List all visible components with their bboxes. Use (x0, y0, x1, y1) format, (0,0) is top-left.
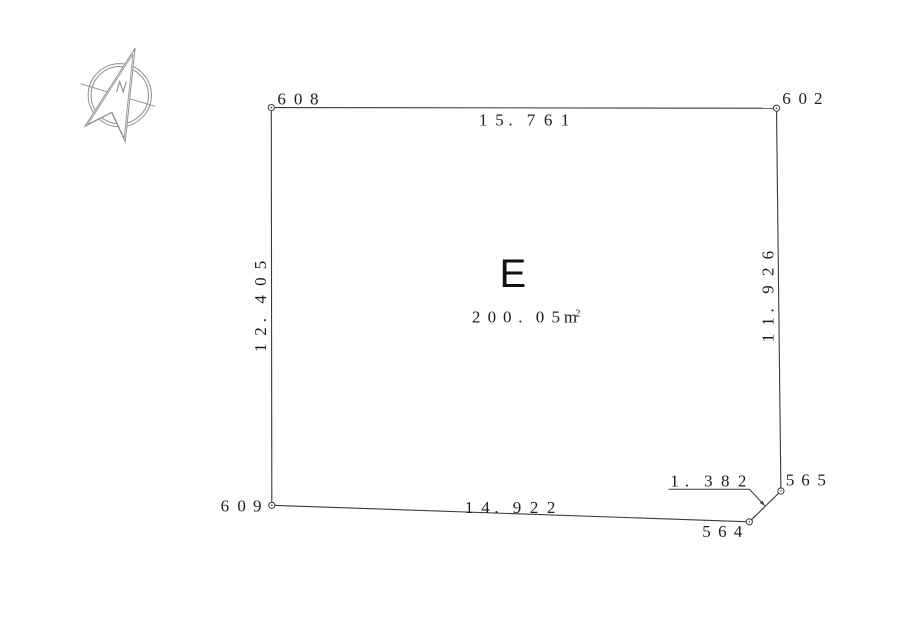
svg-text:200.05m2: 200.05m2 (472, 308, 581, 327)
svg-text:608: 608 (277, 90, 318, 109)
svg-text:1.382: 1.382 (670, 471, 746, 490)
svg-text:E: E (500, 252, 527, 296)
svg-text:602: 602 (782, 89, 822, 108)
svg-text:565: 565 (786, 471, 826, 490)
svg-text:15.761: 15.761 (479, 110, 570, 129)
svg-text:609: 609 (221, 496, 262, 515)
svg-text:12.405: 12.405 (251, 261, 270, 352)
svg-text:11.926: 11.926 (758, 251, 777, 342)
svg-text:564: 564 (702, 522, 743, 541)
